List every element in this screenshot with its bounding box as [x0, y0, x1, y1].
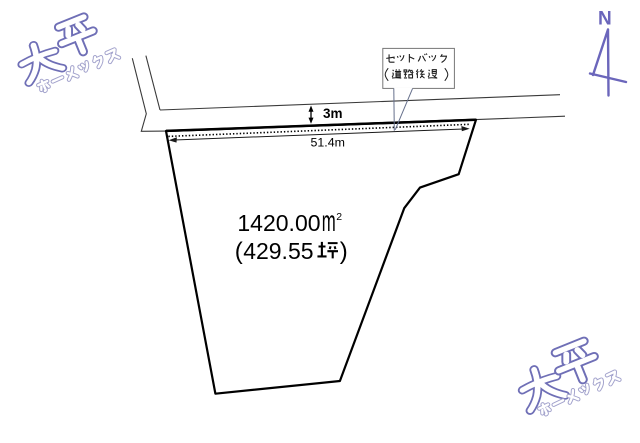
svg-text:51.4m: 51.4m — [311, 135, 345, 149]
svg-text:N: N — [598, 9, 612, 30]
svg-text:m: m — [322, 205, 336, 238]
svg-text:(: ( — [235, 238, 243, 265]
svg-text:429.55: 429.55 — [243, 238, 313, 264]
svg-text:1420.00: 1420.00 — [237, 210, 320, 236]
svg-text:3m: 3m — [323, 106, 343, 121]
svg-text:): ) — [340, 238, 348, 265]
svg-text:2: 2 — [336, 211, 342, 223]
